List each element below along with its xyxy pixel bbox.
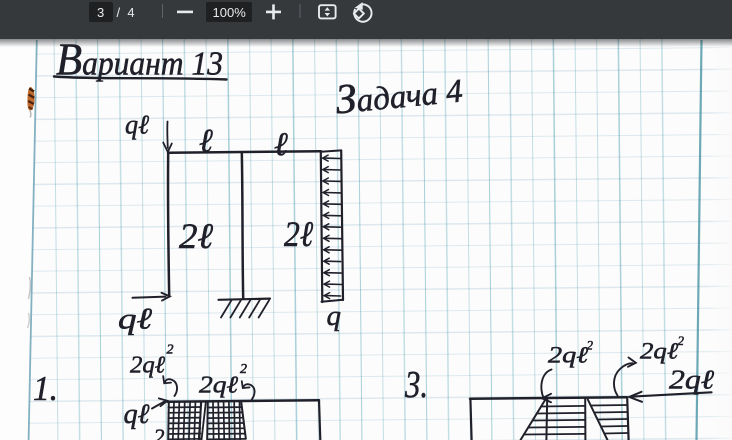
svg-text:2qℓ: 2qℓ xyxy=(548,343,588,368)
svg-text:1.: 1. xyxy=(33,369,58,408)
svg-text:ℓ: ℓ xyxy=(274,127,288,163)
svg-text:2qℓ: 2qℓ xyxy=(640,339,678,364)
svg-text:2qℓ: 2qℓ xyxy=(199,373,238,399)
svg-text:Задача 4: Задача 4 xyxy=(334,65,465,123)
svg-text:2: 2 xyxy=(167,343,174,358)
svg-text:qℓ: qℓ xyxy=(118,303,153,336)
svg-text:qℓ: qℓ xyxy=(124,399,150,430)
svg-text:2ℓ: 2ℓ xyxy=(284,214,313,254)
svg-text:2ℓ: 2ℓ xyxy=(179,216,213,256)
svg-text:2: 2 xyxy=(587,338,594,353)
svg-text:2qℓ: 2qℓ xyxy=(669,365,715,395)
svg-text:3.: 3. xyxy=(404,364,428,406)
svg-text:2: 2 xyxy=(678,333,685,348)
svg-text:2: 2 xyxy=(154,424,165,440)
svg-text:qℓ: qℓ xyxy=(125,110,150,140)
svg-text:q: q xyxy=(327,300,342,332)
svg-text:2: 2 xyxy=(240,362,247,377)
svg-text:2qℓ: 2qℓ xyxy=(130,353,165,379)
svg-text:ℓ: ℓ xyxy=(199,124,213,160)
